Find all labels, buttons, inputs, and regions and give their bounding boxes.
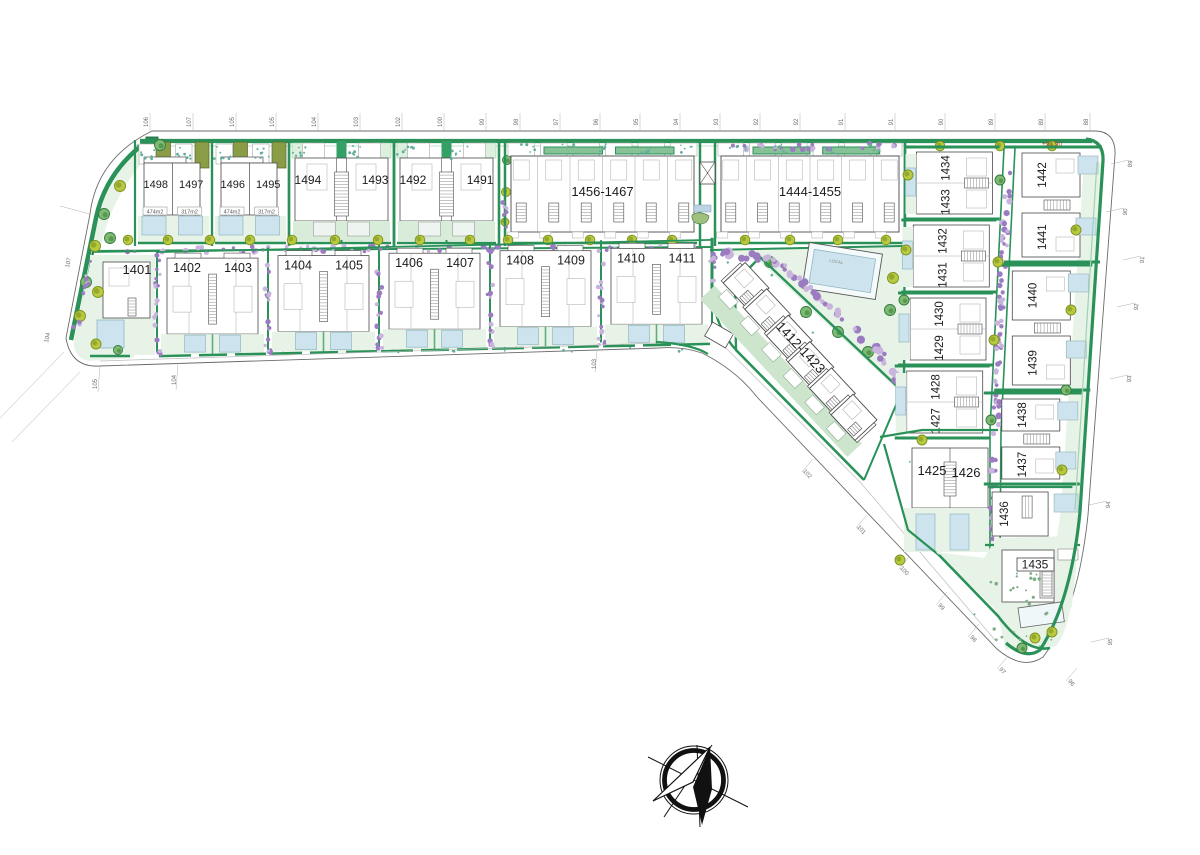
svg-text:1410: 1410: [617, 251, 645, 265]
svg-text:105: 105: [230, 116, 236, 127]
svg-text:474m2: 474m2: [147, 210, 164, 216]
svg-text:91: 91: [1140, 256, 1147, 264]
svg-text:95: 95: [634, 118, 640, 125]
svg-text:1428: 1428: [931, 374, 943, 400]
svg-text:1434: 1434: [941, 155, 953, 181]
svg-text:99: 99: [480, 118, 486, 125]
svg-text:98: 98: [514, 118, 520, 125]
svg-text:1494: 1494: [295, 173, 322, 187]
svg-text:1408: 1408: [506, 254, 534, 268]
svg-text:1495: 1495: [256, 179, 280, 191]
svg-text:1456-1467: 1456-1467: [571, 184, 633, 199]
svg-text:104: 104: [172, 374, 178, 385]
svg-text:97: 97: [554, 118, 560, 125]
svg-text:89: 89: [1039, 118, 1045, 125]
svg-text:1491: 1491: [467, 173, 494, 187]
svg-text:317m2: 317m2: [181, 210, 198, 216]
svg-text:1409: 1409: [557, 254, 585, 268]
svg-text:92: 92: [754, 118, 760, 125]
svg-text:1430: 1430: [934, 301, 946, 327]
svg-text:1492: 1492: [400, 173, 427, 187]
svg-text:1436: 1436: [999, 501, 1011, 527]
svg-text:103: 103: [592, 358, 598, 369]
svg-text:1444-1455: 1444-1455: [779, 184, 841, 199]
svg-text:95: 95: [1108, 638, 1115, 646]
svg-text:104: 104: [312, 116, 318, 127]
svg-text:106: 106: [144, 116, 150, 127]
svg-text:1440: 1440: [1027, 283, 1039, 309]
svg-text:1432: 1432: [937, 228, 949, 254]
svg-text:103: 103: [354, 116, 360, 127]
svg-text:91: 91: [839, 118, 845, 125]
svg-text:1407: 1407: [446, 256, 474, 270]
svg-text:1404: 1404: [284, 259, 312, 273]
svg-text:1442: 1442: [1037, 162, 1049, 188]
svg-text:1426: 1426: [952, 465, 981, 480]
svg-text:317m2: 317m2: [258, 210, 275, 216]
svg-text:1425: 1425: [918, 463, 947, 478]
svg-text:1431: 1431: [937, 262, 949, 288]
svg-text:1435: 1435: [1022, 558, 1049, 572]
svg-text:100: 100: [438, 116, 444, 127]
svg-text:94: 94: [674, 118, 680, 125]
svg-text:91: 91: [889, 118, 895, 125]
svg-text:88: 88: [1084, 118, 1090, 125]
svg-text:93: 93: [714, 118, 720, 125]
svg-text:1429: 1429: [934, 335, 946, 361]
svg-text:1441: 1441: [1037, 224, 1049, 250]
svg-text:89: 89: [989, 118, 995, 125]
svg-text:1498: 1498: [144, 179, 168, 191]
svg-text:92: 92: [794, 118, 800, 125]
svg-text:1438: 1438: [1017, 402, 1029, 428]
svg-text:93: 93: [1127, 375, 1134, 383]
svg-text:1405: 1405: [335, 259, 363, 273]
svg-text:1433: 1433: [941, 189, 953, 215]
svg-text:1497: 1497: [179, 179, 203, 191]
svg-text:1493: 1493: [362, 173, 389, 187]
svg-text:1402: 1402: [173, 261, 201, 275]
svg-text:105: 105: [270, 116, 276, 127]
svg-text:96: 96: [594, 118, 600, 125]
svg-text:1403: 1403: [224, 261, 252, 275]
svg-text:105: 105: [93, 378, 99, 389]
svg-text:90: 90: [1123, 208, 1130, 216]
svg-text:1401: 1401: [123, 262, 152, 277]
svg-text:89: 89: [1128, 160, 1135, 168]
svg-text:474m2: 474m2: [224, 210, 241, 216]
svg-text:94: 94: [1106, 501, 1113, 509]
svg-text:1406: 1406: [395, 256, 423, 270]
svg-text:107: 107: [187, 116, 193, 127]
svg-text:1439: 1439: [1027, 350, 1039, 376]
svg-text:1437: 1437: [1017, 452, 1029, 478]
svg-text:1411: 1411: [669, 251, 696, 265]
svg-text:+91,90: +91,90: [1042, 141, 1062, 148]
svg-text:90: 90: [939, 118, 945, 125]
svg-text:1496: 1496: [221, 179, 245, 191]
svg-text:102: 102: [396, 116, 402, 127]
svg-text:92: 92: [1134, 303, 1141, 311]
